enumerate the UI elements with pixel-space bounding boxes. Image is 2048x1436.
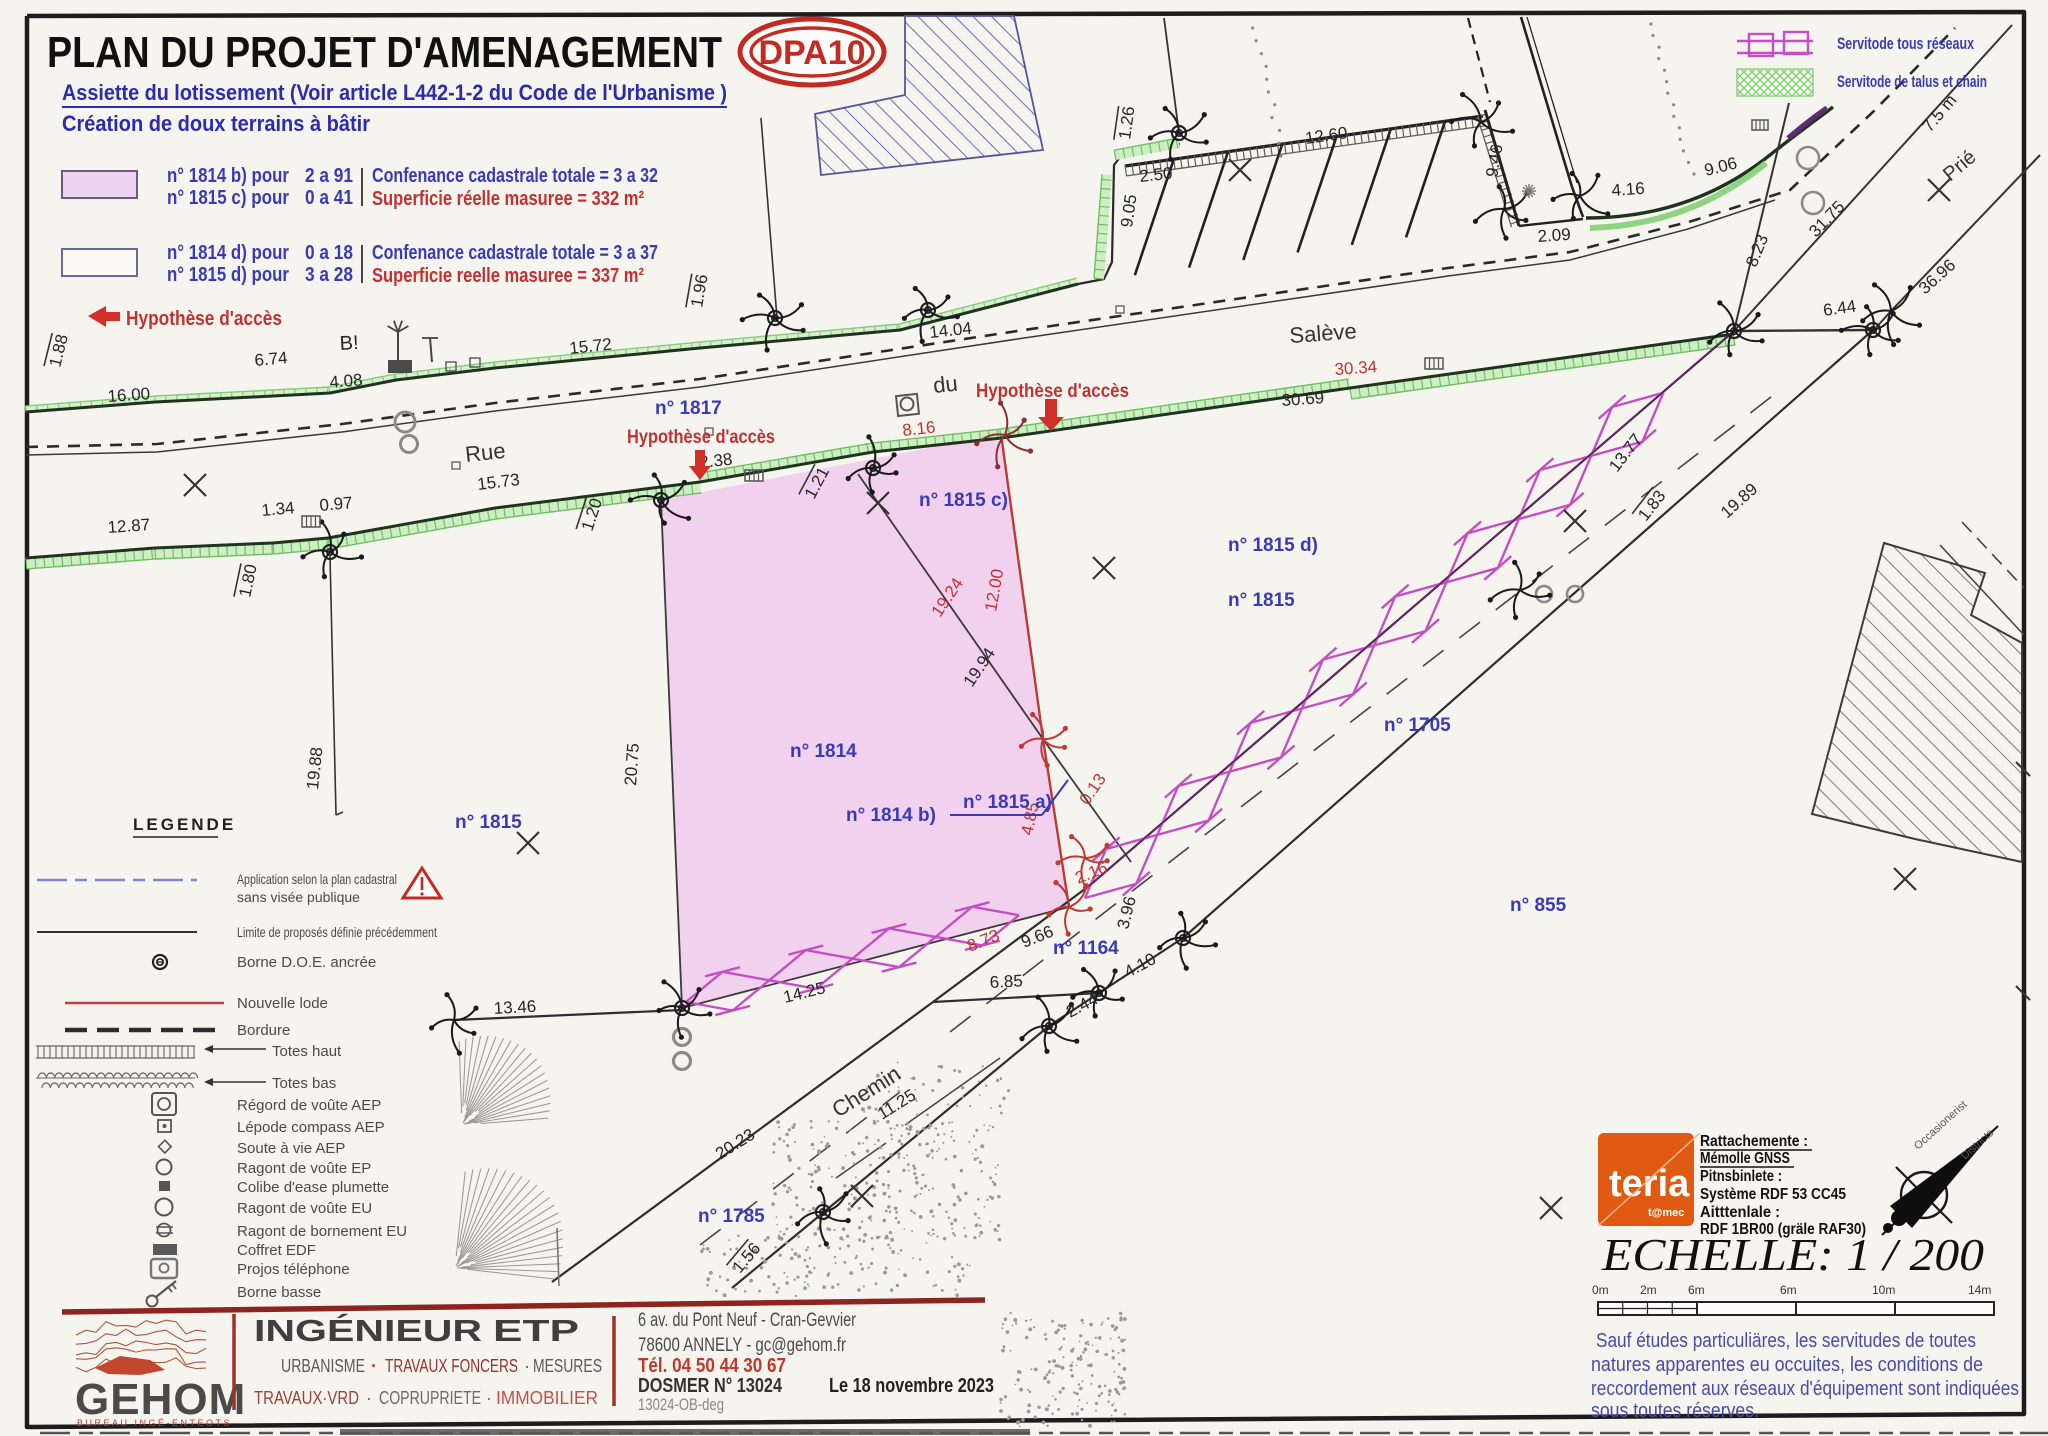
svg-text:DPA10: DPA10 [758,34,865,72]
svg-text:2.09: 2.09 [1537,225,1571,246]
svg-text:ECHELLE: 1 / 200: ECHELLE: 1 / 200 [1601,1229,1984,1280]
svg-text:·: · [524,1356,530,1376]
svg-text:du: du [932,371,959,398]
svg-text:n° 1817: n° 1817 [655,398,722,419]
svg-text:t@mec: t@mec [1648,1207,1684,1219]
svg-text:6.85: 6.85 [989,971,1023,992]
svg-text:BUREAU INGÉ-ENTEOTS: BUREAU INGÉ-ENTEOTS [77,1418,232,1428]
svg-text:B!: B! [339,332,359,355]
svg-text:Colibe d'ease plumette: Colibe d'ease plumette [237,1179,389,1196]
svg-text:6 av. du Pont Neuf - Cran-Gevv: 6 av. du Pont Neuf - Cran-Gevvier [638,1310,857,1331]
svg-text:n° 1814 b) pour: n° 1814 b) pour [167,165,289,187]
svg-text:·: · [366,1388,372,1408]
svg-text:Sauf études particuliäres, les: Sauf études particuliäres, les servitude… [1596,1330,1976,1352]
svg-text:Bordure: Bordure [237,1022,290,1039]
svg-text:Pitnsbinlete :: Pitnsbinlete : [1700,1168,1782,1185]
svg-text:Salève: Salève [1289,318,1358,348]
svg-text:2.50: 2.50 [1138,164,1173,186]
svg-text:n° 1815 c) pour: n° 1815 c) pour [167,187,289,209]
svg-text:Ragont de bornement EU: Ragont de bornement EU [237,1223,407,1240]
svg-text:LEGENDE: LEGENDE [133,815,236,834]
svg-text:n° 1815 d) pour: n° 1815 d) pour [167,264,289,286]
svg-text:0 a 41: 0 a 41 [305,187,353,209]
svg-text:Régord de voûte AEP: Régord de voûte AEP [237,1097,381,1114]
svg-text:n° 1814 d) pour: n° 1814 d) pour [167,242,289,264]
svg-text:8.16: 8.16 [901,418,936,440]
svg-text:Servitode tous réseaux: Servitode tous réseaux [1837,34,1974,53]
svg-text:Borne basse: Borne basse [237,1284,321,1301]
svg-text:Hypothèse d'accès: Hypothèse d'accès [627,427,775,448]
svg-text:6m: 6m [1780,1283,1797,1297]
svg-text:COPRUPRIETE: COPRUPRIETE [379,1388,481,1408]
svg-text:Le 18 novembre 2023: Le 18 novembre 2023 [829,1375,994,1397]
svg-text:URBANISME: URBANISME [281,1356,365,1376]
svg-text:Totes bas: Totes bas [272,1075,336,1092]
svg-text:Ragont de voûte EP: Ragont de voûte EP [237,1160,371,1177]
svg-text:n° 1815 a): n° 1815 a) [963,792,1052,813]
svg-text:TRAVAUX·VRD: TRAVAUX·VRD [254,1388,359,1408]
svg-text:10m: 10m [1872,1283,1895,1297]
svg-text:1.34: 1.34 [261,498,296,520]
svg-text:Application selon la plan cada: Application selon la plan cadastral [237,871,397,887]
svg-text:n° 1785: n° 1785 [698,1206,765,1227]
svg-text:natures apparentes eu occuites: natures apparentes eu occuites, les cond… [1591,1354,1983,1376]
svg-text:Hypothèse d'accès: Hypothèse d'accès [976,381,1129,402]
svg-text:78600 ANNELY - gc@gehom.fr: 78600 ANNELY - gc@gehom.fr [638,1335,847,1356]
svg-text:30.69: 30.69 [1281,388,1325,410]
svg-text:·: · [486,1388,492,1408]
svg-text:Mémolle GNSS: Mémolle GNSS [1700,1150,1790,1167]
svg-text:Création de doux terrains à bâ: Création de doux terrains à bâtir [62,111,370,136]
svg-text:IMMOBILIER: IMMOBILIER [496,1388,598,1408]
svg-text:16.00: 16.00 [107,384,151,406]
svg-text:14m: 14m [1968,1283,1991,1297]
svg-text:Soute à vie AEP: Soute à vie AEP [237,1140,345,1157]
svg-text:n° 1815 c): n° 1815 c) [919,490,1008,511]
svg-text:20.75: 20.75 [621,743,643,787]
svg-text:2m: 2m [1640,1283,1657,1297]
svg-text:TRAVAUX FONCERS: TRAVAUX FONCERS [385,1356,518,1376]
svg-text:12.87: 12.87 [107,515,151,537]
svg-text:n° 1164: n° 1164 [1053,938,1119,959]
svg-text:0 a 18: 0 a 18 [305,242,353,264]
svg-text:teria: teria [1609,1163,1690,1205]
svg-text:0m: 0m [1592,1283,1609,1297]
svg-text:GEHOM: GEHOM [75,1375,246,1424]
svg-text:Lépode compass AEP: Lépode compass AEP [237,1119,385,1136]
svg-text:Servitode de talus et chain: Servitode de talus et chain [1837,72,1987,91]
svg-text:Système RDF 53 CC45: Système RDF 53 CC45 [1700,1186,1846,1203]
svg-text:Rattachemente :: Rattachemente : [1700,1133,1808,1150]
svg-text:Borne D.O.E. ancrée: Borne D.O.E. ancrée [237,954,376,971]
svg-text:n° 1815 d): n° 1815 d) [1228,535,1318,556]
svg-text:reccordement aux réseaux d'équ: reccordement aux réseaux d'équipement so… [1591,1378,2019,1400]
svg-text:MESURES: MESURES [533,1356,602,1376]
svg-text:PLAN DU PROJET D'AMENAGEMENT: PLAN DU PROJET D'AMENAGEMENT [47,28,722,77]
svg-text:Assiette du lotissement (Voir: Assiette du lotissement (Voir article L4… [62,80,727,105]
svg-text:0.97: 0.97 [319,493,354,515]
svg-text:DOSMER N° 13024: DOSMER N° 13024 [638,1375,783,1397]
svg-text:n° 1705: n° 1705 [1384,715,1451,736]
svg-text:13024-OB-deg: 13024-OB-deg [638,1395,724,1414]
svg-text:Confenance cadastrale totale =: Confenance cadastrale totale = 3 a 32 [372,165,658,187]
svg-text:30.34: 30.34 [1334,357,1378,379]
svg-text:6m: 6m [1688,1283,1705,1297]
svg-text:n° 1815: n° 1815 [1228,590,1295,611]
svg-text:Tél. 04 50 44 30 67: Tél. 04 50 44 30 67 [638,1355,786,1377]
svg-text:n° 1814 b): n° 1814 b) [846,805,936,826]
svg-text:3 a 28: 3 a 28 [305,264,353,286]
svg-text:2 a 91: 2 a 91 [305,165,353,187]
svg-text:Limite de proposés définie pré: Limite de proposés définie précédemment [237,924,437,940]
svg-text:n° 1814: n° 1814 [790,741,857,762]
svg-text:n° 1815: n° 1815 [455,812,522,833]
svg-text:4.16: 4.16 [1611,179,1645,200]
svg-text:sous toutes réserves.: sous toutes réserves. [1591,1400,1759,1422]
svg-text:Rue: Rue [464,438,507,467]
svg-text:Coffret EDF: Coffret EDF [237,1242,316,1259]
svg-text:INGÉNIEUR: INGÉNIEUR [254,1313,482,1348]
svg-text:Aitttenlale :: Aitttenlale : [1700,1204,1780,1221]
svg-text:Totes haut: Totes haut [272,1043,342,1060]
svg-text:Superficie réelle masuree = 33: Superficie réelle masuree = 332 m² [372,188,644,210]
svg-text:Nouvelle lode: Nouvelle lode [237,995,328,1012]
svg-text:sans visée publique: sans visée publique [237,889,360,905]
svg-text:Projos téléphone: Projos téléphone [237,1261,350,1278]
svg-text:Confenance cadastrale totale =: Confenance cadastrale totale = 3 a 37 [372,242,658,264]
svg-text:Hypothèse d'accès: Hypothèse d'accès [126,308,282,330]
svg-text:4.08: 4.08 [329,370,364,392]
svg-text:·: · [371,1356,377,1376]
svg-text:n° 855: n° 855 [1510,895,1567,916]
svg-text:Superficie reelle masuree = 33: Superficie reelle masuree = 337 m² [372,265,644,287]
svg-text:Ragont de voûte EU: Ragont de voûte EU [237,1200,372,1217]
svg-text:6.74: 6.74 [254,348,289,370]
svg-text:13.46: 13.46 [493,997,536,1018]
svg-text:ETP: ETP [493,1313,579,1348]
